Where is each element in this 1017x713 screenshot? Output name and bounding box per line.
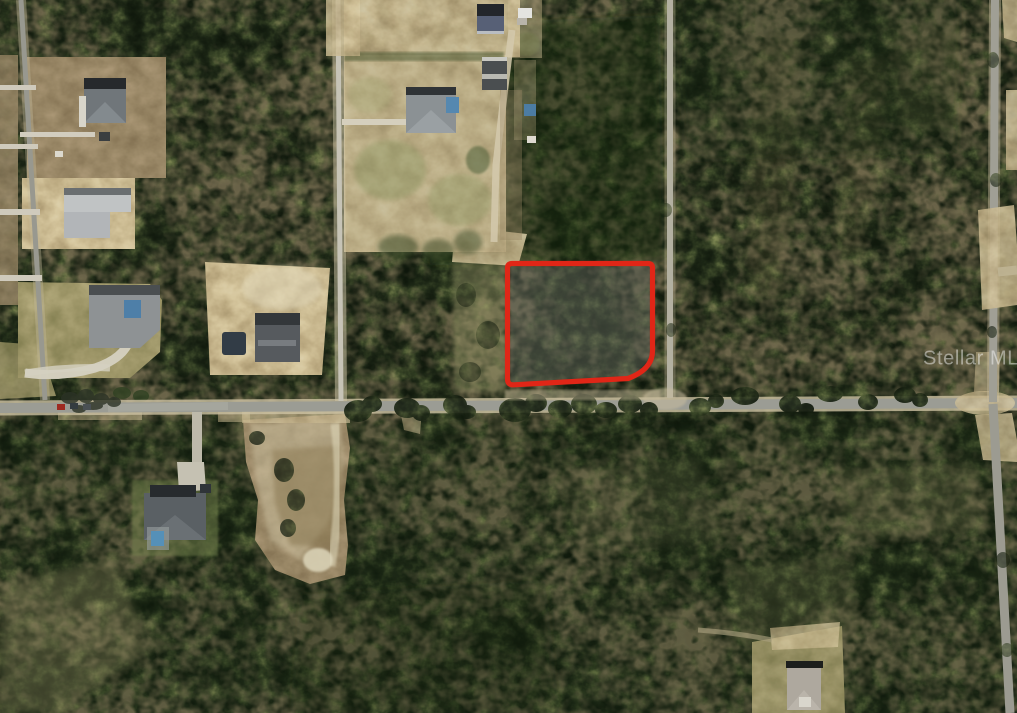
svg-text:Stellar MLS: Stellar MLS <box>923 348 1017 370</box>
